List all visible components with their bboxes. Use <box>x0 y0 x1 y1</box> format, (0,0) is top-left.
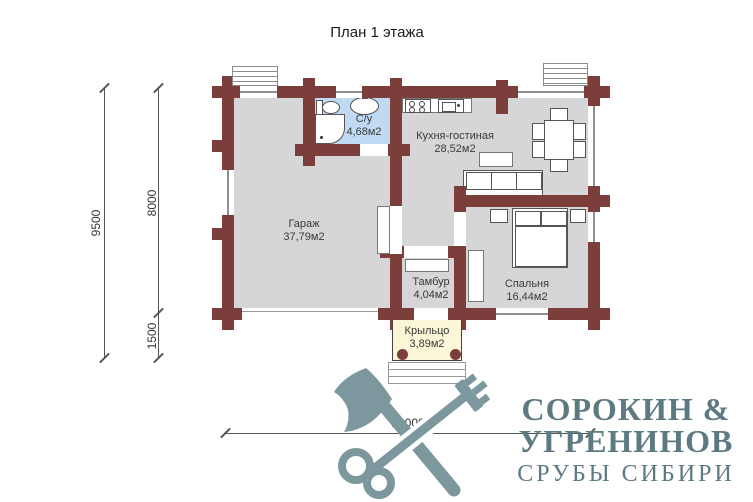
window-bedroom-bottom <box>496 308 548 320</box>
wardrobe-icon <box>405 259 449 272</box>
page-title: План 1 этажа <box>277 24 477 41</box>
pillow-icon <box>541 211 567 226</box>
blanket <box>515 226 567 267</box>
log-crossing <box>295 144 303 156</box>
nightstand-icon <box>490 209 508 223</box>
log-crossing <box>588 76 600 86</box>
sofa-cushion <box>516 172 542 190</box>
shower-drain-icon <box>320 136 323 139</box>
label-porch: Крыльцо3,89м2 <box>392 325 462 350</box>
log-crossing <box>212 308 222 320</box>
stove-icon <box>405 99 431 113</box>
sofa-cushion <box>466 172 492 190</box>
label-vestibule: Тамбур4,04м2 <box>391 276 471 301</box>
log-crossing <box>600 195 610 207</box>
log-crossing <box>303 156 315 166</box>
sofa-cushion <box>491 172 517 190</box>
sink-faucet <box>457 104 460 107</box>
garage-gate <box>242 308 378 320</box>
chair-icon <box>573 141 586 158</box>
door-leaf-icon <box>377 206 390 254</box>
window-garage-left <box>222 170 234 215</box>
log-crossing <box>303 78 315 86</box>
chair-icon <box>532 123 545 140</box>
label-kitchen-living: Кухня-гостиная28,52м2 <box>395 130 515 155</box>
window-bathroom-top <box>336 86 362 98</box>
floor-plan-page: План 1 этажа <box>0 0 753 502</box>
logo-line-3: СРУБЫ СИБИРИ <box>500 461 752 488</box>
dim-label-1500: 1500 <box>145 311 159 361</box>
log-crossing <box>212 228 222 240</box>
window-garage-top <box>240 86 277 98</box>
opening-vestibule-kitchen <box>404 246 448 258</box>
logo-axe-key-icon <box>328 366 506 502</box>
door-vestibule-porch <box>414 308 448 320</box>
kitchen-sink-icon <box>438 99 464 113</box>
door-garage-kitchen <box>390 206 402 254</box>
door-bedroom <box>454 212 466 246</box>
door-bathroom <box>360 144 388 156</box>
log-crossing <box>454 186 466 195</box>
bed-icon <box>512 208 568 268</box>
chair-icon <box>532 141 545 158</box>
chair-icon <box>573 123 586 140</box>
dim-label-8000: 8000 <box>145 178 159 228</box>
window-kitchen-top <box>518 86 584 98</box>
window-kitchen-right <box>588 106 600 186</box>
porch-post-icon <box>397 349 408 360</box>
pillow-icon <box>515 211 541 226</box>
wall-bedroom-top <box>454 195 600 207</box>
window-casing-icon <box>543 63 588 86</box>
dining-table-icon <box>544 120 574 160</box>
label-bathroom: С/у4,68м2 <box>334 113 394 138</box>
chair-icon <box>550 108 568 121</box>
window-bedroom-right <box>588 212 600 242</box>
log-crossing <box>600 308 610 320</box>
dim-label-9500: 9500 <box>89 198 103 248</box>
sink-basin <box>442 102 456 112</box>
window-casing-icon <box>232 66 278 86</box>
label-garage: Гараж37,79м2 <box>244 218 364 243</box>
log-crossing <box>496 80 508 114</box>
log-crossing <box>600 86 610 98</box>
key-bow-ring <box>367 471 391 495</box>
log-crossing <box>212 86 222 98</box>
dim-line-9500 <box>104 88 105 358</box>
logo-line-2: УГРЕНИНОВ <box>500 423 752 460</box>
log-crossing <box>222 320 234 330</box>
log-crossing <box>212 140 222 152</box>
log-crossing <box>588 320 600 330</box>
label-bedroom: Спальня16,44м2 <box>467 278 587 303</box>
nightstand-icon <box>570 209 586 223</box>
porch-post-icon <box>450 349 461 360</box>
log-crossing <box>390 78 402 86</box>
chair-icon <box>550 159 568 172</box>
sofa-icon <box>463 170 543 196</box>
